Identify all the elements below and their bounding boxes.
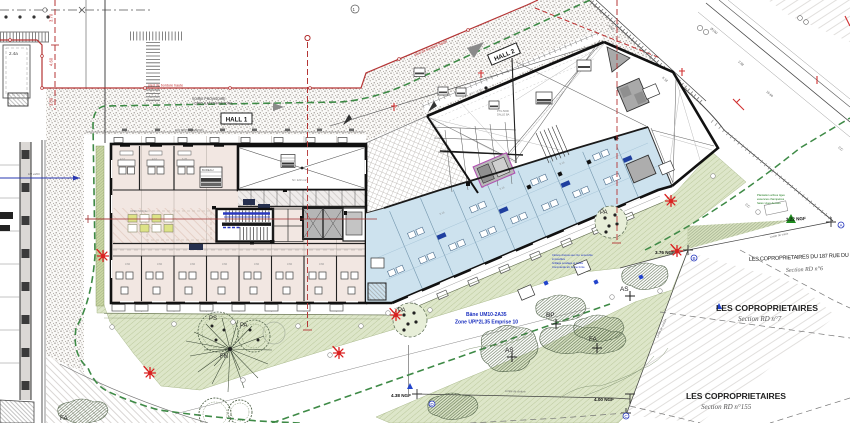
- svg-text:P.01 TROTTOIR BETON: P.01 TROTTOIR BETON: [175, 128, 204, 132]
- svg-text:3.60: 3.60: [157, 262, 163, 266]
- svg-text:pied de bordure haute: pied de bordure haute: [148, 84, 183, 88]
- svg-text:4.60: 4.60: [49, 57, 54, 66]
- svg-text:BUREAU: BUREAU: [202, 168, 214, 172]
- svg-text:S= 123 m2: S= 123 m2: [292, 178, 307, 182]
- svg-text:FN: FN: [220, 354, 228, 360]
- svg-text:PA: PA: [240, 323, 248, 329]
- svg-text:Section RD n°155: Section RD n°155: [701, 403, 752, 411]
- svg-text:LES COPROPRIETAIRES: LES COPROPRIETAIRES: [716, 303, 818, 313]
- svg-text:PTG 5000: PTG 5000: [497, 109, 509, 113]
- svg-text:CIRCULATION PIETONS: CIRCULATION PIETONS: [194, 102, 233, 106]
- svg-text:FA: FA: [589, 336, 598, 343]
- svg-text:Commande alt. borne fonte: Commande alt. borne fonte: [552, 265, 585, 269]
- svg-text:3.76 NGF: 3.76 NGF: [655, 250, 675, 255]
- svg-text:3.22 NGF: 3.22 NGF: [786, 216, 806, 222]
- svg-text:AS: AS: [620, 286, 629, 293]
- svg-text:EU ø200: EU ø200: [28, 172, 40, 176]
- svg-text:Cloture d'acces aux livr. ense: Cloture d'acces aux livr. ensemble: [552, 253, 593, 257]
- svg-text:HALL 1: HALL 1: [226, 117, 248, 124]
- svg-text:4.10: 4.10: [152, 157, 158, 161]
- svg-text:immeubles: immeubles: [552, 257, 566, 261]
- svg-text:3.50: 3.50: [49, 97, 54, 106]
- svg-text:DALLE BA: DALLE BA: [497, 112, 510, 116]
- svg-text:B: B: [692, 256, 695, 261]
- svg-text:Section RD n°7: Section RD n°7: [738, 315, 782, 323]
- svg-text:PS: PS: [209, 316, 217, 322]
- svg-text:OPEN SPACE: OPEN SPACE: [130, 209, 147, 213]
- svg-text:4.00 NGF: 4.00 NGF: [594, 397, 614, 402]
- svg-text:3.60: 3.60: [222, 262, 228, 266]
- svg-text:4.10: 4.10: [120, 157, 126, 161]
- svg-text:Bâne UM10-2A35: Bâne UM10-2A35: [466, 312, 507, 318]
- svg-text:BP: BP: [546, 312, 555, 319]
- svg-text:2.4a: 2.4a: [9, 51, 18, 56]
- svg-text:haies vives denses: haies vives denses: [757, 201, 781, 205]
- svg-text:3.60: 3.60: [190, 262, 196, 266]
- svg-text:3.60: 3.60: [319, 262, 325, 266]
- svg-text:Grillage soudage et treillis: Grillage soudage et treillis: [552, 261, 584, 265]
- svg-text:3.60: 3.60: [287, 262, 293, 266]
- svg-text:3.70: 3.70: [49, 13, 54, 22]
- svg-text:PA: PA: [600, 210, 608, 216]
- svg-text:Zone UPI*2L35 Emprise 10: Zone UPI*2L35 Emprise 10: [455, 320, 518, 326]
- svg-text:3.60: 3.60: [254, 262, 260, 266]
- svg-text:3.60: 3.60: [125, 262, 131, 266]
- svg-text:VOIRIE PROVISOIRE: VOIRIE PROVISOIRE: [192, 97, 226, 101]
- svg-text:LES COPROPRIETAIRES: LES COPROPRIETAIRES: [686, 391, 786, 401]
- svg-text:6.35: 6.35: [182, 157, 188, 161]
- svg-text:4.38 NGF: 4.38 NGF: [391, 393, 411, 398]
- svg-text:FA: FA: [60, 415, 69, 422]
- svg-text:Limite de cloture: Limite de cloture: [505, 389, 526, 394]
